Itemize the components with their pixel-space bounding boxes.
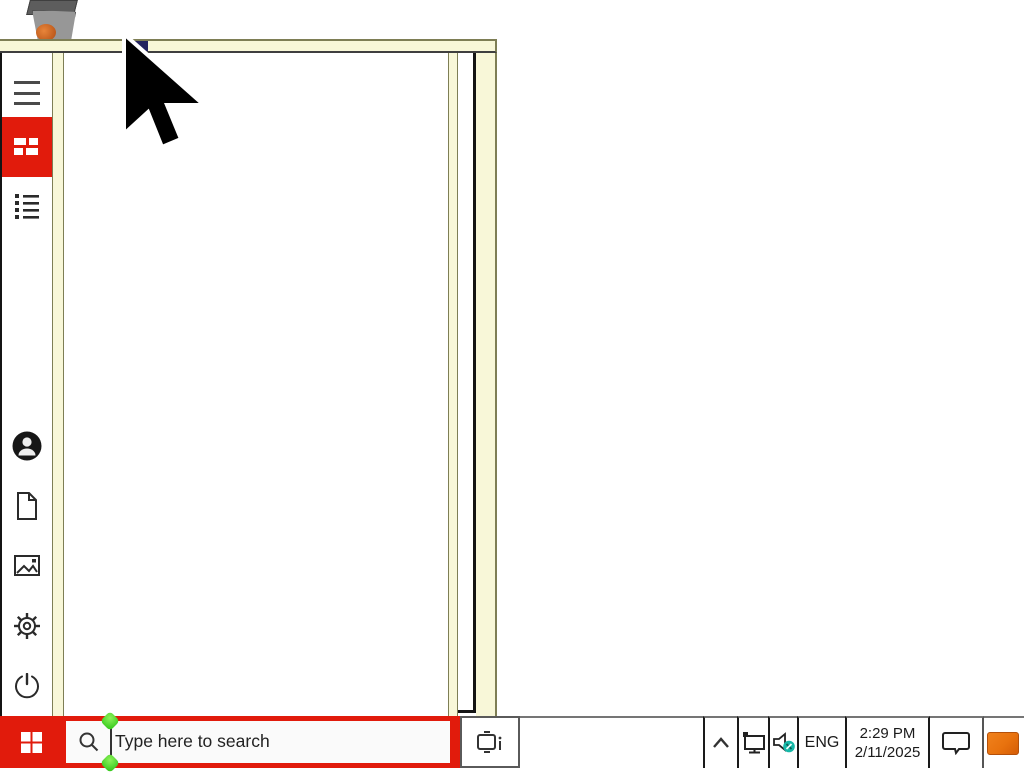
document-icon (14, 491, 40, 521)
speaker-badge-icon (772, 732, 796, 754)
task-view-icon (476, 730, 504, 754)
system-tray: ENG 2:29 PM 2/11/2025 (703, 716, 1022, 768)
language-label: ENG (805, 734, 840, 752)
window-fragment (127, 41, 148, 51)
clock-date: 2/11/2025 (855, 743, 921, 762)
search-icon (78, 731, 101, 754)
gear-icon (13, 612, 41, 640)
start-menu-back-border (476, 53, 497, 716)
sidebar-item-all-apps[interactable] (14, 192, 40, 222)
start-menu-top-border (0, 39, 497, 53)
tray-volume-button[interactable] (768, 716, 797, 768)
orange-app-icon (987, 732, 1019, 755)
start-menu-sidebar (0, 53, 52, 716)
tray-network-button[interactable] (737, 716, 768, 768)
sidebar-item-pictures[interactable] (13, 554, 41, 578)
clock-time: 2:29 PM (860, 724, 916, 743)
chevron-up-icon (712, 737, 730, 749)
user-icon (12, 431, 42, 461)
task-view-button[interactable] (460, 716, 520, 768)
notification-icon (941, 731, 971, 755)
start-menu-right-border (448, 53, 458, 716)
start-menu-back-panel (458, 53, 476, 713)
tiles-icon (14, 138, 40, 156)
tray-app-button[interactable] (984, 716, 1022, 768)
start-menu-content (64, 53, 448, 716)
sidebar-item-account[interactable] (12, 431, 42, 461)
ethernet-icon (741, 731, 767, 755)
list-icon (14, 192, 40, 222)
sidebar-item-documents[interactable] (14, 491, 40, 521)
sidebar-item-power[interactable] (14, 673, 40, 699)
start-button[interactable] (0, 716, 62, 768)
pictures-icon (13, 554, 41, 578)
tray-language-button[interactable]: ENG (797, 716, 845, 768)
tray-clock-button[interactable]: 2:29 PM 2/11/2025 (845, 716, 930, 768)
sidebar-item-settings[interactable] (13, 612, 41, 640)
hamburger-icon (14, 81, 40, 84)
action-center-button[interactable] (930, 716, 984, 768)
windows-logo (21, 732, 42, 753)
power-icon (14, 673, 40, 699)
start-menu-sidebar-divider (52, 53, 64, 716)
search-input[interactable]: Type here to search (66, 721, 450, 763)
sidebar-item-pinned-tiles[interactable] (2, 117, 52, 177)
search-placeholder: Type here to search (115, 731, 270, 752)
sidebar-item-menu[interactable] (12, 79, 42, 107)
tray-overflow-button[interactable] (703, 716, 737, 768)
